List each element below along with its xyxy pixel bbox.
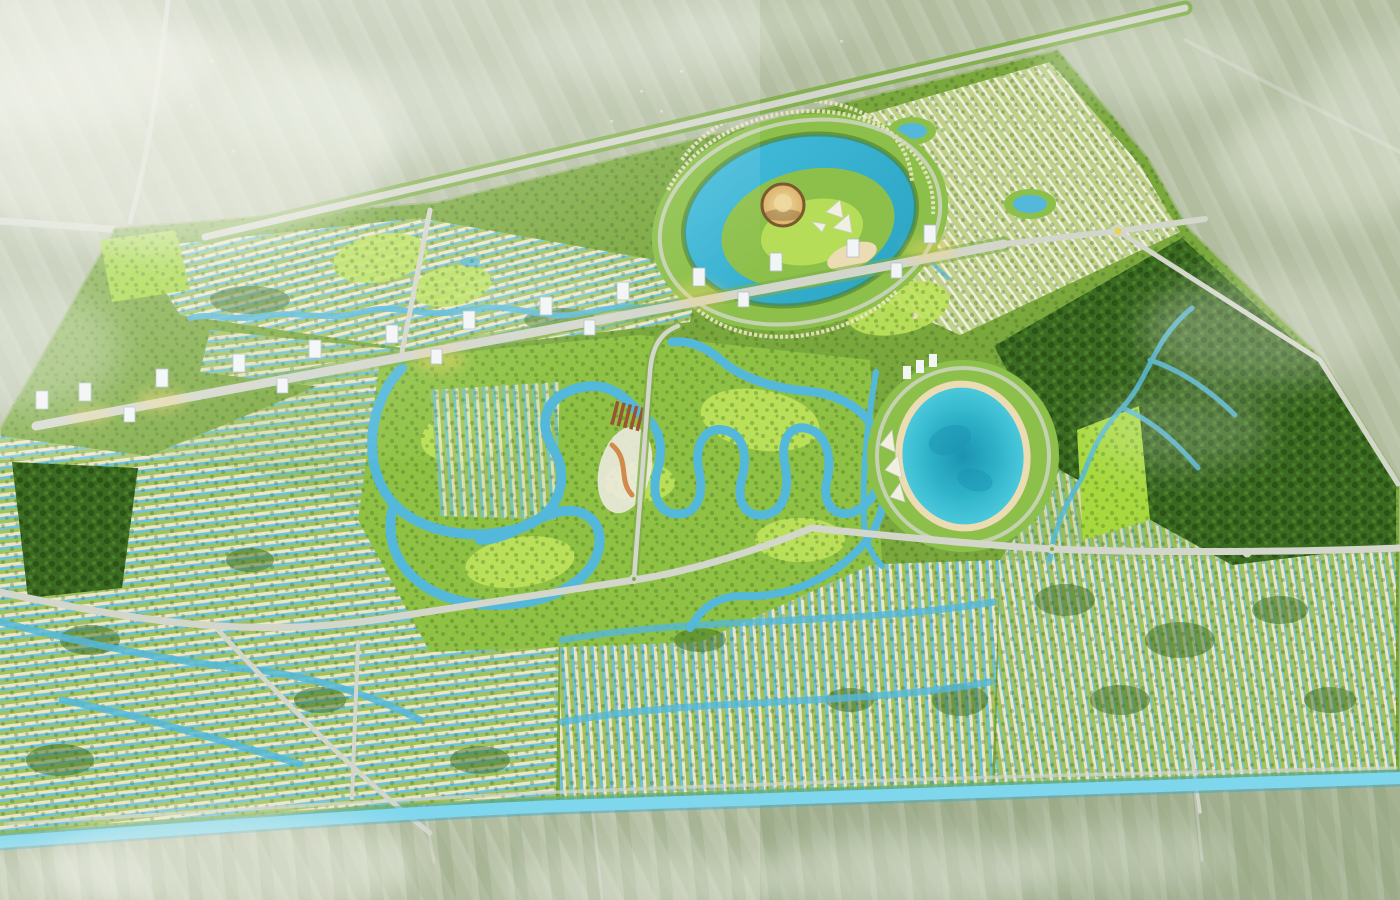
highrise-tower	[891, 263, 902, 278]
highrise-tower	[847, 239, 859, 257]
tower-block	[916, 360, 924, 373]
cloud	[1090, 390, 1270, 470]
cloud	[1030, 15, 1270, 105]
pond	[1013, 195, 1047, 213]
tower-block	[903, 366, 911, 379]
roundabout	[1243, 549, 1252, 558]
cloud	[1010, 823, 1230, 893]
tower-block	[929, 354, 937, 367]
highrise-tower	[924, 225, 936, 243]
aerial-masterplan-rendering	[0, 0, 1400, 900]
roundabout-lawn	[1115, 228, 1122, 235]
roundabout-green	[1050, 547, 1054, 551]
cloud	[1140, 275, 1380, 385]
cloud	[210, 65, 550, 155]
highrise-tower	[770, 253, 782, 271]
masterplan-canvas	[0, 0, 1400, 900]
dome-cap	[774, 194, 792, 212]
cloud	[450, 275, 630, 325]
roundabout-green	[632, 577, 636, 581]
